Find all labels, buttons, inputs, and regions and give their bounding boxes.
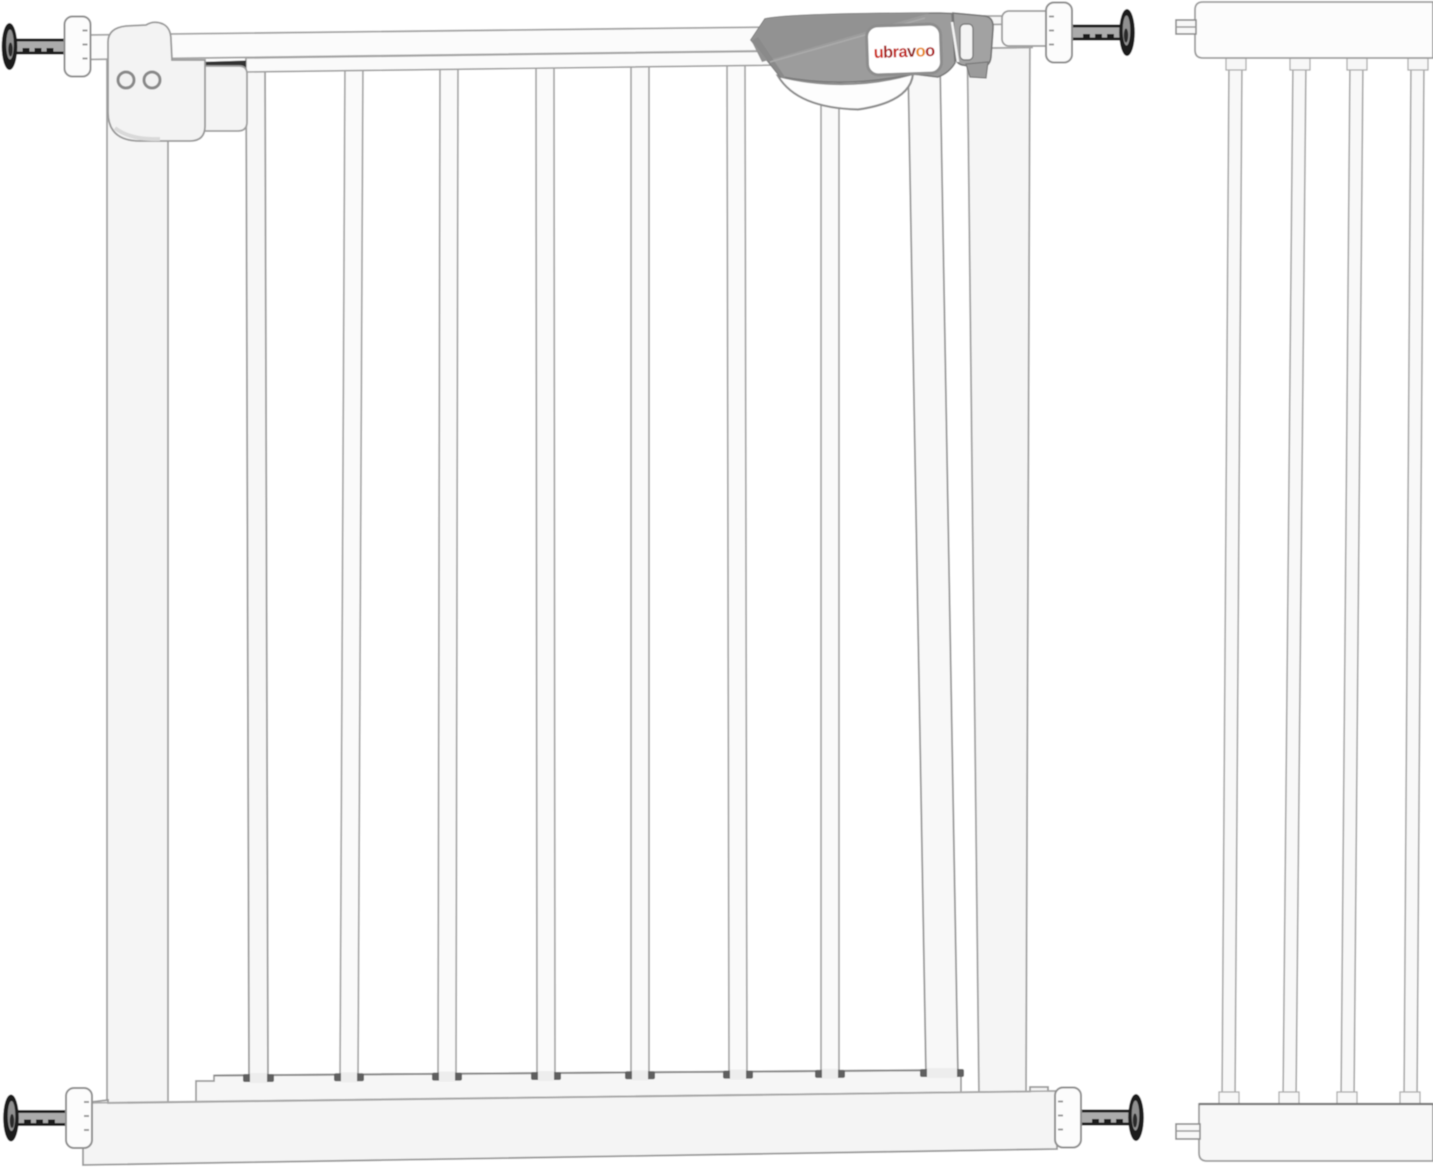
svg-text:ubravoo: ubravoo [873, 42, 935, 62]
